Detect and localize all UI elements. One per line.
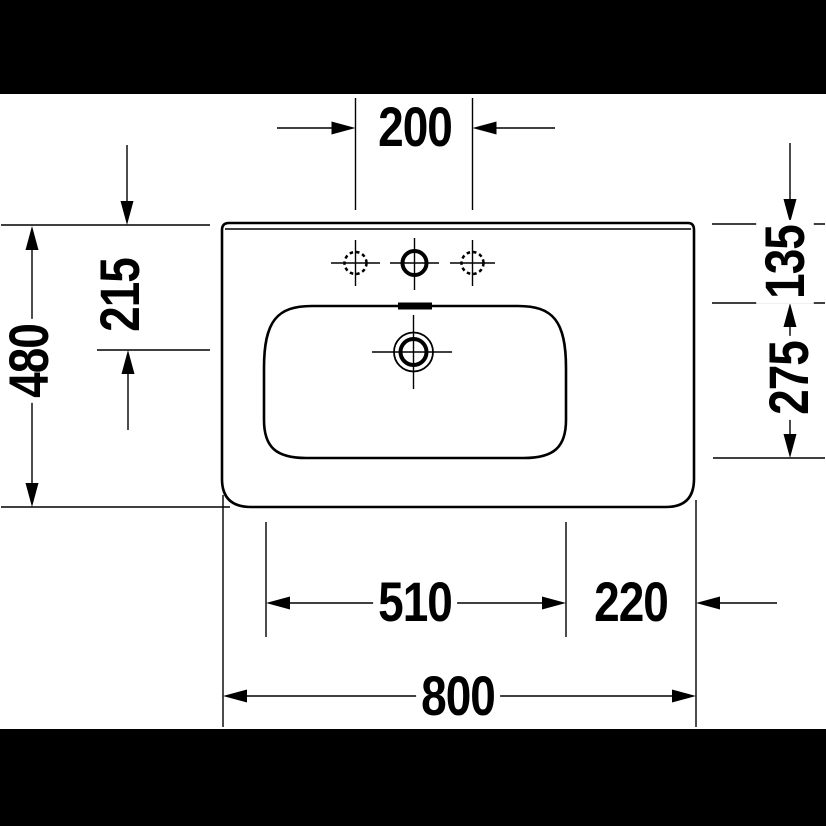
technical-drawing-canvas: 200 480 215 135 275 510 220 800 [0,0,826,826]
dim-label-overall-depth: 480 [0,319,58,403]
basin-edge [264,306,566,458]
dim-label-rim-to-basin: 135 [756,220,814,304]
dim-label-side-offset: 220 [589,573,673,631]
dim-label-overall-width: 800 [416,667,500,725]
overflow-slot [398,303,432,310]
dim-label-tap-spacing: 200 [373,98,457,156]
dim-label-basin-width: 510 [373,573,457,631]
dim-label-overflow-offset: 215 [91,253,149,337]
dim-label-basin-depth: 275 [760,336,818,420]
